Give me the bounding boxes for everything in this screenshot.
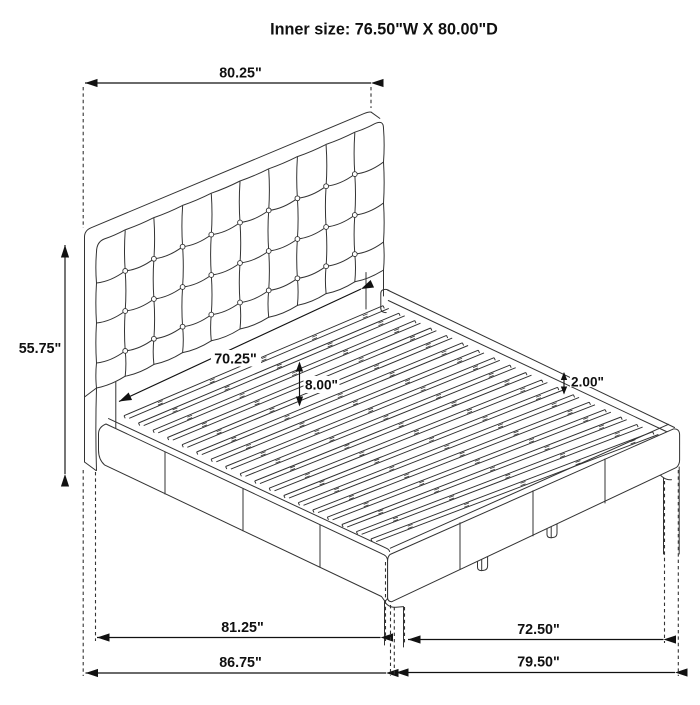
svg-text:72.50": 72.50" [517,622,560,638]
svg-text:8.00": 8.00" [305,378,338,393]
svg-text:80.25": 80.25" [219,66,262,82]
svg-text:81.25": 81.25" [221,620,264,636]
svg-text:70.25": 70.25" [214,352,257,368]
svg-text:Inner size: 76.50"W X 80.00"D: Inner size: 76.50"W X 80.00"D [270,21,498,39]
svg-text:86.75": 86.75" [219,655,262,671]
svg-text:79.50": 79.50" [517,655,560,671]
svg-text:2.00": 2.00" [571,375,604,390]
svg-text:55.75": 55.75" [19,341,62,357]
